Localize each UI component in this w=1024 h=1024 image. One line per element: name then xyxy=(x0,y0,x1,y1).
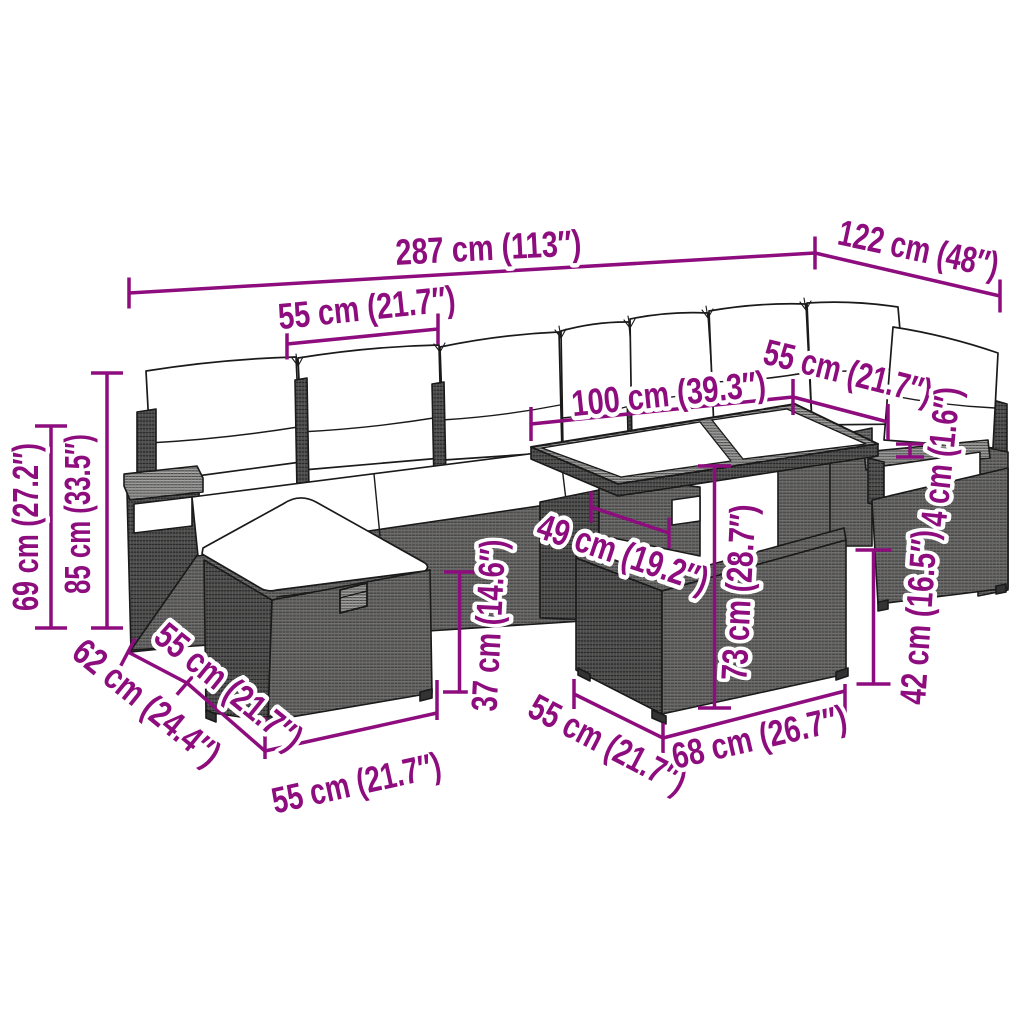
svg-text:85 cm (33.5″): 85 cm (33.5″) xyxy=(57,434,98,594)
svg-text:68 cm (26.7″): 68 cm (26.7″) xyxy=(668,697,851,777)
svg-text:55 cm (21.7″): 55 cm (21.7″) xyxy=(268,744,445,821)
svg-text:69 cm (27.2″): 69 cm (27.2″) xyxy=(5,443,46,611)
svg-text:287 cm (113″): 287 cm (113″) xyxy=(394,222,582,273)
svg-text:122 cm (48″): 122 cm (48″) xyxy=(835,212,1003,286)
svg-text:37 cm (14.6″): 37 cm (14.6″) xyxy=(464,538,514,712)
